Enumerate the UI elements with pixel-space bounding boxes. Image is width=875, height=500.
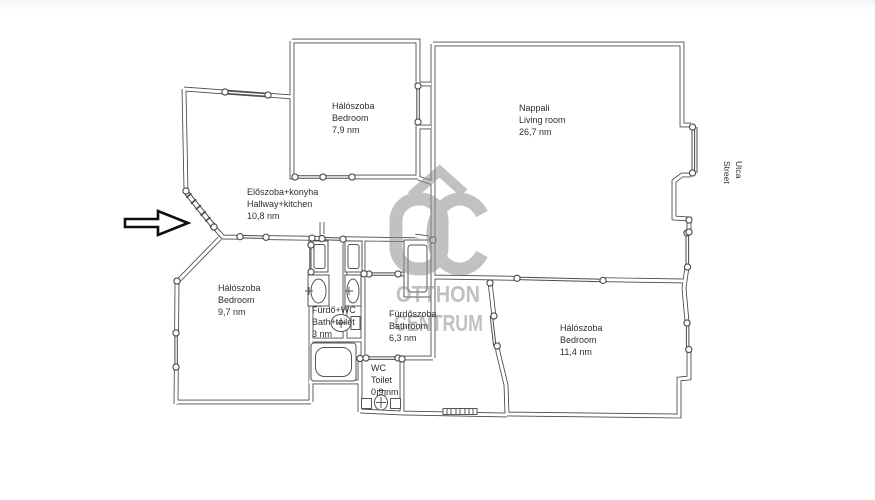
room-name-en: Living room	[519, 114, 566, 126]
street-label: Utca Street	[721, 161, 745, 203]
room-area: 0,9 nm	[371, 386, 399, 398]
room-name-hu: Hálószoba	[560, 322, 603, 334]
room-label-bedroom-right: Hálószoba Bedroom 11,4 nm	[560, 322, 603, 358]
room-area: 26,7 nm	[519, 126, 566, 138]
room-name-en: Bedroom	[218, 294, 261, 306]
room-label-bath-toilet: Fürdő+WC Bath+toilet 3 nm	[312, 304, 356, 340]
room-area: 6,3 nm	[389, 332, 437, 344]
room-name-hu: Hálószoba	[218, 282, 261, 294]
room-name-hu: Fürdőszoba	[389, 308, 437, 320]
room-area: 11,4 nm	[560, 346, 603, 358]
room-name-en: Bathroom	[389, 320, 437, 332]
room-name-en: Bath+toilet	[312, 316, 356, 328]
room-name-en: Toilet	[371, 374, 399, 386]
room-label-bedroom-top: Hálószoba Bedroom 7,9 nm	[332, 100, 375, 136]
room-area: 10,8 nm	[247, 210, 318, 222]
room-area: 3 nm	[312, 328, 356, 340]
room-name-en: Bedroom	[332, 112, 375, 124]
room-name-hu: WC	[371, 362, 399, 374]
street-label-hu: Utca	[733, 161, 745, 203]
room-label-bathroom: Fürdőszoba Bathroom 6,3 nm	[389, 308, 437, 344]
room-name-hu: Nappali	[519, 102, 566, 114]
room-area: 7,9 nm	[332, 124, 375, 136]
street-label-en: Street	[721, 161, 733, 203]
room-label-living-room: Nappali Living room 26,7 nm	[519, 102, 566, 138]
watermark-line1: OTTHON	[396, 281, 480, 307]
room-area: 9,7 nm	[218, 306, 261, 318]
room-name-en: Hallway+kitchen	[247, 198, 318, 210]
room-name-en: Bedroom	[560, 334, 603, 346]
room-name-hu: Fürdő+WC	[312, 304, 356, 316]
room-name-hu: Hálószoba	[332, 100, 375, 112]
room-label-wc: WC Toilet 0,9 nm	[371, 362, 399, 398]
floor-plan-page: OTTHON CENTRUM Hálószoba Bedroom 7,9 nm …	[0, 0, 875, 500]
floor-plan-canvas: OTTHON CENTRUM	[0, 0, 875, 500]
room-label-bedroom-left: Hálószoba Bedroom 9,7 nm	[218, 282, 261, 318]
room-label-hallway-kitchen: Előszoba+konyha Hallway+kitchen 10,8 nm	[247, 186, 318, 222]
room-name-hu: Előszoba+konyha	[247, 186, 318, 198]
entrance-arrow-icon	[125, 211, 188, 235]
